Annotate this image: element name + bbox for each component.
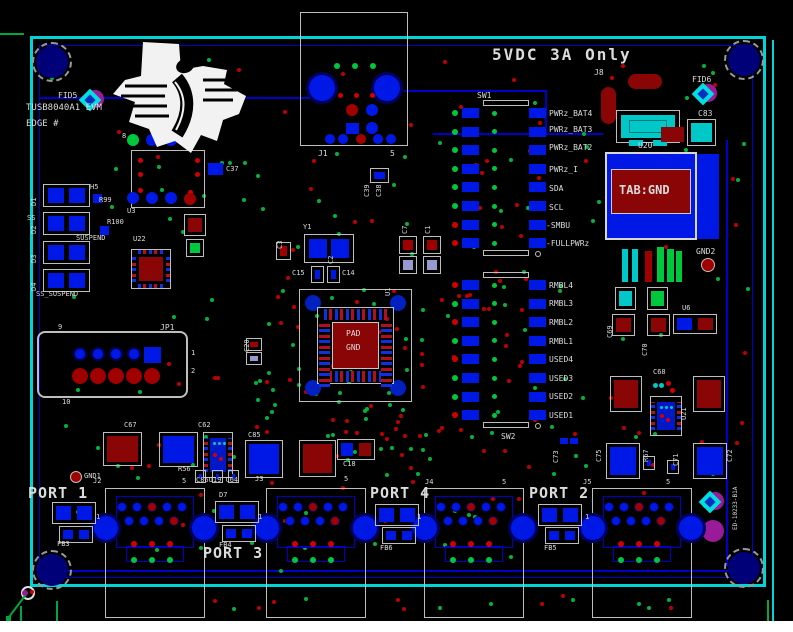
pin-row	[381, 324, 392, 387]
silkscreen-label: 5	[502, 479, 506, 486]
pad	[481, 502, 491, 512]
edge-label-text: EDGE #	[26, 120, 59, 129]
pcb-shape	[529, 145, 546, 155]
pcb-shape	[529, 373, 546, 383]
pcb-shape	[48, 245, 64, 260]
pad	[656, 516, 666, 526]
pcb-shape	[661, 127, 684, 142]
silkscreen-label: U22	[133, 236, 146, 243]
pad	[452, 110, 458, 116]
via	[255, 425, 259, 429]
pad	[108, 368, 124, 384]
silkscreen-label: PWRz_I	[549, 166, 578, 174]
pin-row	[204, 438, 208, 472]
j8-pad	[601, 87, 616, 124]
board-name-text: TUSB8040A1 EVM	[26, 104, 102, 113]
pcb-shape	[346, 123, 359, 134]
pcb-shape	[139, 257, 163, 281]
pad	[323, 502, 333, 512]
via	[470, 435, 474, 439]
indicator-bar	[657, 247, 664, 282]
silkscreen-label: JP1	[160, 324, 174, 332]
pcb-shape	[190, 243, 200, 253]
pad	[618, 557, 624, 563]
trace-line	[0, 33, 24, 35]
pad	[486, 557, 492, 563]
pad	[452, 338, 458, 344]
pcb-shape	[462, 317, 479, 327]
pcb-shape	[462, 108, 479, 118]
pcb-layout-view: 5VDC 3A Only TUSB8040A1 EVM EDGE # PORT …	[0, 0, 793, 632]
silkscreen-label: D3	[31, 255, 38, 263]
mounting-hole-ring	[32, 550, 72, 590]
via	[421, 448, 425, 452]
pcb-shape	[529, 201, 546, 211]
pcb-shape	[651, 291, 664, 306]
silkscreen-label: RMBL1	[549, 338, 573, 346]
pad	[670, 406, 673, 409]
pad	[604, 502, 614, 512]
via	[574, 454, 578, 458]
pcb-shape	[698, 318, 713, 330]
pcb-shape	[77, 506, 92, 520]
via	[533, 101, 537, 105]
pcb-shape	[462, 164, 479, 174]
mount-pad	[306, 72, 338, 104]
pad	[213, 442, 216, 445]
pad	[139, 516, 149, 526]
via	[138, 188, 143, 193]
via	[232, 607, 236, 611]
via	[379, 447, 383, 451]
pcb-shape	[529, 317, 546, 327]
pad	[634, 502, 644, 512]
pad	[492, 204, 497, 209]
pcb-shape	[359, 443, 371, 456]
via	[540, 602, 544, 606]
via	[309, 187, 313, 191]
silkscreen-label: Y1	[303, 224, 311, 231]
pad	[315, 516, 325, 526]
silkscreen-label: 2	[191, 368, 195, 375]
silkscreen-label: RMBL3	[549, 300, 573, 308]
port1-label: PORT 1	[28, 486, 88, 501]
silkscreen-label: C69	[607, 325, 614, 338]
via	[666, 381, 671, 386]
silkscreen-label: SS	[27, 215, 35, 222]
silkscreen-label: 1	[585, 514, 589, 521]
pad	[492, 283, 497, 288]
pad	[626, 516, 636, 526]
pad	[218, 442, 221, 445]
ti-logo	[105, 40, 255, 158]
pad	[292, 541, 298, 547]
pin-row	[166, 256, 170, 282]
via	[482, 307, 486, 311]
pad	[443, 516, 453, 526]
silkscreen-label: U6	[682, 305, 690, 312]
pcb-shape	[462, 182, 479, 192]
pad	[292, 557, 298, 563]
silkscreen-label: SS_SUSPEND	[36, 291, 78, 298]
silkscreen-label: SW2	[501, 433, 515, 441]
via	[731, 177, 735, 181]
silkscreen-label: C62	[198, 422, 211, 429]
silkscreen-label: ED-10233-B1A	[733, 487, 739, 530]
pad	[370, 63, 376, 69]
pcb-shape	[219, 505, 234, 519]
silkscreen-label: -SMBU	[546, 222, 570, 230]
pad	[366, 122, 378, 134]
indicator-bar	[622, 249, 628, 282]
gnd2-testpoint	[701, 258, 715, 272]
pad	[654, 557, 660, 563]
via	[533, 386, 537, 390]
c37-cap	[208, 163, 223, 175]
via	[291, 248, 295, 252]
pad	[328, 541, 334, 547]
via	[243, 161, 247, 165]
pcb-shape	[48, 188, 64, 203]
silkscreen-label: H5	[90, 184, 98, 191]
pcb-shape	[483, 422, 529, 428]
pcb-shape	[462, 392, 479, 402]
pcb-shape	[462, 220, 479, 230]
silkscreen-label: R99	[99, 197, 112, 204]
via	[279, 321, 283, 325]
silkscreen-label: R56	[178, 466, 191, 473]
via	[409, 466, 413, 470]
pad	[366, 104, 378, 116]
pad	[492, 148, 497, 153]
pad	[338, 502, 348, 512]
pin-row	[138, 284, 164, 288]
silkscreen-label: TAB:GND	[619, 184, 670, 196]
via	[396, 598, 400, 602]
silkscreen-label: PWRz_BAT2	[549, 144, 592, 152]
pin-row	[324, 371, 387, 382]
pcb-shape	[403, 260, 413, 270]
pcb-shape	[386, 531, 396, 540]
silkscreen-label: C1	[425, 226, 432, 234]
silkscreen-label: PWRz_BAT3	[549, 126, 592, 134]
pcb-shape	[462, 373, 479, 383]
port3-label: PORT 3	[203, 546, 263, 561]
pcb-shape	[677, 318, 692, 330]
silkscreen-label: RMBL4	[549, 282, 573, 290]
port4-label: PORT 4	[370, 486, 430, 501]
pad	[665, 406, 668, 409]
pad	[169, 516, 179, 526]
silkscreen-label: C38	[376, 184, 383, 197]
silkscreen-label: FID5	[58, 92, 77, 100]
pcb-shape	[250, 356, 258, 361]
silkscreen-label: USED4	[549, 356, 573, 364]
via	[276, 295, 280, 299]
silkscreen-label: C73	[553, 450, 560, 463]
pad	[330, 516, 340, 526]
pad	[149, 541, 155, 547]
pcb-shape	[303, 444, 332, 473]
silkscreen-label: FB3	[57, 541, 70, 548]
via	[702, 64, 706, 68]
via	[195, 158, 200, 163]
via	[392, 183, 396, 187]
silkscreen-label: C70	[642, 343, 649, 356]
silkscreen-label: SCL	[549, 204, 563, 212]
silkscreen-label: FB4	[219, 542, 232, 549]
via	[403, 434, 407, 438]
via	[213, 599, 217, 603]
port2-label: PORT 2	[529, 486, 589, 501]
silkscreen-label: C3	[277, 241, 284, 249]
indicator-bar	[667, 249, 674, 282]
mounting-hole-ring	[32, 42, 72, 82]
via	[659, 383, 664, 388]
pad	[167, 557, 173, 563]
silkscreen-label: C85	[248, 432, 261, 439]
pcb-shape	[462, 238, 479, 248]
silkscreen-label: R100	[107, 219, 124, 226]
via	[288, 378, 292, 382]
via	[653, 383, 658, 388]
silkscreen-label: C83	[698, 110, 712, 118]
pad	[308, 502, 318, 512]
silkscreen-label: C86U19 C64	[196, 477, 238, 484]
pcb-shape	[402, 531, 412, 540]
silkscreen-label: 5	[182, 478, 186, 485]
silkscreen-label: SDA	[549, 185, 563, 193]
pad	[452, 301, 458, 307]
silkscreen-label: J8	[594, 69, 604, 77]
sw1-dip-switch[interactable]	[483, 100, 529, 106]
pcb-shape	[331, 270, 336, 279]
pcb-shape	[560, 438, 568, 444]
silkscreen-label: C14	[342, 270, 355, 277]
silkscreen-label: C20	[244, 339, 251, 352]
trace-line	[726, 140, 728, 566]
silkscreen-label: C18	[343, 461, 356, 468]
via	[421, 308, 425, 312]
pad	[452, 203, 458, 209]
pad	[458, 516, 468, 526]
pcb-shape	[619, 291, 632, 306]
silkscreen-label: D4	[31, 283, 38, 291]
mounting-hole-ring	[724, 548, 764, 588]
indicator-bar	[645, 251, 652, 282]
sw2-dip-switch[interactable]	[483, 272, 529, 278]
silkscreen-label: U21	[681, 407, 688, 420]
pad	[90, 368, 106, 384]
silkscreen-label: SW1	[477, 92, 491, 100]
pad	[124, 516, 134, 526]
pcb-shape	[616, 318, 631, 332]
pcb-shape	[79, 530, 89, 539]
pad	[154, 516, 164, 526]
silkscreen-label: C71	[673, 453, 680, 466]
via	[265, 380, 269, 384]
via	[242, 198, 246, 202]
pcb-shape	[250, 342, 258, 347]
pin-row	[651, 402, 655, 430]
pad	[450, 557, 456, 563]
pcb-shape	[529, 354, 546, 364]
silkscreen-label: 5	[344, 476, 348, 483]
silkscreen-label: U1	[385, 288, 392, 296]
via	[331, 433, 335, 437]
via	[363, 409, 367, 413]
pad	[492, 241, 497, 246]
silkscreen-label: FB6	[380, 545, 393, 552]
via	[370, 219, 374, 223]
via	[136, 476, 140, 480]
silkscreen-label: GND2	[696, 248, 715, 256]
silkscreen-label: J2	[93, 478, 101, 485]
silkscreen-label: PAD	[346, 330, 360, 338]
pad	[452, 282, 458, 288]
silkscreen-label: C75	[596, 449, 603, 462]
pad	[162, 502, 172, 512]
pad	[492, 166, 497, 171]
pad	[354, 93, 359, 98]
silkscreen-label: C39	[364, 184, 371, 197]
silkscreen-label: C15	[292, 270, 305, 277]
pad	[386, 134, 396, 144]
via	[195, 172, 200, 177]
pad	[127, 347, 141, 361]
pad	[165, 192, 177, 204]
pcb-shape	[614, 380, 638, 408]
pad	[486, 541, 492, 547]
pcb-shape	[691, 123, 712, 142]
via	[369, 404, 373, 408]
pin-row	[319, 324, 330, 387]
pad	[147, 502, 157, 512]
pad	[473, 516, 483, 526]
voltage-warning-text: 5VDC 3A Only	[492, 47, 632, 63]
via	[270, 410, 274, 414]
via	[138, 172, 143, 177]
pad	[492, 185, 497, 190]
pcb-shape	[48, 273, 64, 288]
silkscreen-label: USED1	[549, 412, 573, 420]
silkscreen-label: FB5	[544, 545, 557, 552]
silkscreen-label: USED3	[549, 375, 573, 383]
pad	[452, 375, 458, 381]
pad	[664, 502, 674, 512]
indicator-bar	[676, 251, 682, 282]
via	[735, 441, 739, 445]
pad	[285, 516, 295, 526]
via	[734, 223, 738, 227]
jp1-header[interactable]	[37, 331, 188, 398]
via	[634, 435, 638, 439]
via	[527, 465, 531, 469]
pad	[636, 541, 642, 547]
via	[420, 352, 424, 356]
silkscreen-label: 1	[417, 514, 421, 521]
silkscreen-label: D2	[31, 226, 38, 234]
pad	[452, 222, 458, 228]
pcb-shape	[379, 508, 394, 522]
silkscreen-label: C72	[727, 449, 734, 462]
pad	[109, 347, 123, 361]
mount-pad	[578, 513, 608, 543]
pad	[488, 516, 498, 526]
via	[584, 159, 588, 163]
mount-pad	[508, 513, 538, 543]
silkscreen-label: R67	[643, 449, 650, 462]
pad	[310, 557, 316, 563]
j8-pad	[628, 74, 662, 89]
via	[380, 432, 384, 436]
via	[512, 78, 516, 82]
pad	[451, 502, 461, 512]
pad	[338, 93, 343, 98]
pcb-shape	[427, 240, 437, 250]
silkscreen-label: D1	[31, 198, 38, 206]
indicator-bar	[632, 249, 638, 282]
silkscreen-label: 8	[122, 133, 126, 140]
pad	[117, 502, 127, 512]
pad	[496, 502, 506, 512]
pcb-shape	[462, 127, 479, 137]
pcb-shape	[462, 280, 479, 290]
pad	[144, 368, 160, 384]
silkscreen-label: SUSPEND	[76, 235, 106, 242]
via	[523, 328, 527, 332]
pcb-shape	[542, 508, 557, 522]
pcb-shape	[69, 216, 85, 231]
via	[571, 598, 575, 602]
pad	[666, 418, 670, 422]
gnd1-testpoint	[70, 471, 82, 483]
pcb-shape	[226, 529, 236, 538]
pcb-shape	[69, 273, 85, 288]
pcb-shape	[529, 108, 546, 118]
silkscreen-label: PWRz_BAT4	[549, 110, 592, 118]
pcb-shape	[240, 505, 255, 519]
via	[168, 217, 172, 221]
pad	[492, 394, 497, 399]
pad	[452, 394, 458, 400]
pad	[334, 63, 340, 69]
pcb-shape	[529, 220, 546, 230]
pcb-shape	[529, 280, 546, 290]
pad	[452, 166, 458, 172]
silkscreen-label: GND	[346, 344, 360, 352]
via	[402, 607, 406, 611]
pad	[373, 134, 383, 144]
pad	[492, 129, 497, 134]
pcb-shape	[315, 270, 320, 279]
pcb-shape	[163, 436, 194, 463]
pcb-shape	[529, 164, 546, 174]
pcb-shape	[529, 299, 546, 309]
pcb-shape	[144, 347, 161, 363]
via	[561, 594, 565, 598]
pcb-shape	[565, 531, 575, 540]
pcb-shape	[309, 239, 327, 258]
silkscreen-label: J1	[318, 150, 328, 158]
silkscreen-label: C2	[328, 256, 335, 264]
pad	[132, 502, 142, 512]
via	[459, 428, 463, 432]
pad	[370, 93, 375, 98]
via	[399, 414, 403, 418]
pcb-shape	[570, 438, 578, 444]
pcb-shape	[400, 508, 415, 522]
